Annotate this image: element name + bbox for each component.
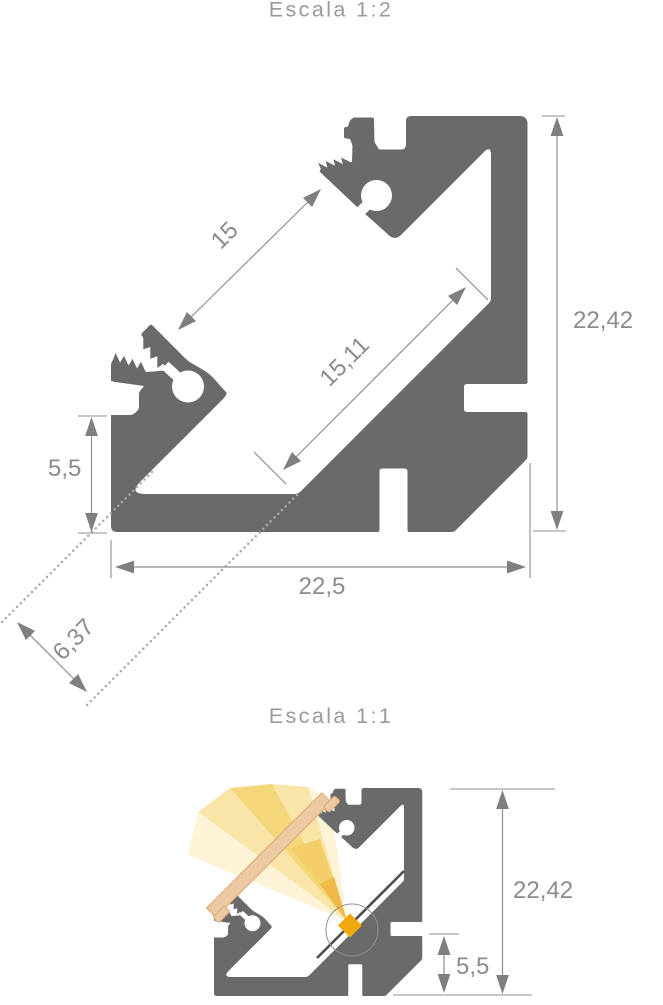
svg-text:22,5: 22,5 [299, 573, 346, 600]
svg-text:5,5: 5,5 [48, 455, 81, 482]
svg-text:Escala 1:2: Escala 1:2 [269, 0, 393, 22]
svg-text:Escala 1:1: Escala 1:1 [269, 704, 393, 728]
svg-text:22,42: 22,42 [513, 877, 573, 904]
svg-text:22,42: 22,42 [573, 307, 633, 334]
svg-text:5,5: 5,5 [456, 953, 489, 980]
